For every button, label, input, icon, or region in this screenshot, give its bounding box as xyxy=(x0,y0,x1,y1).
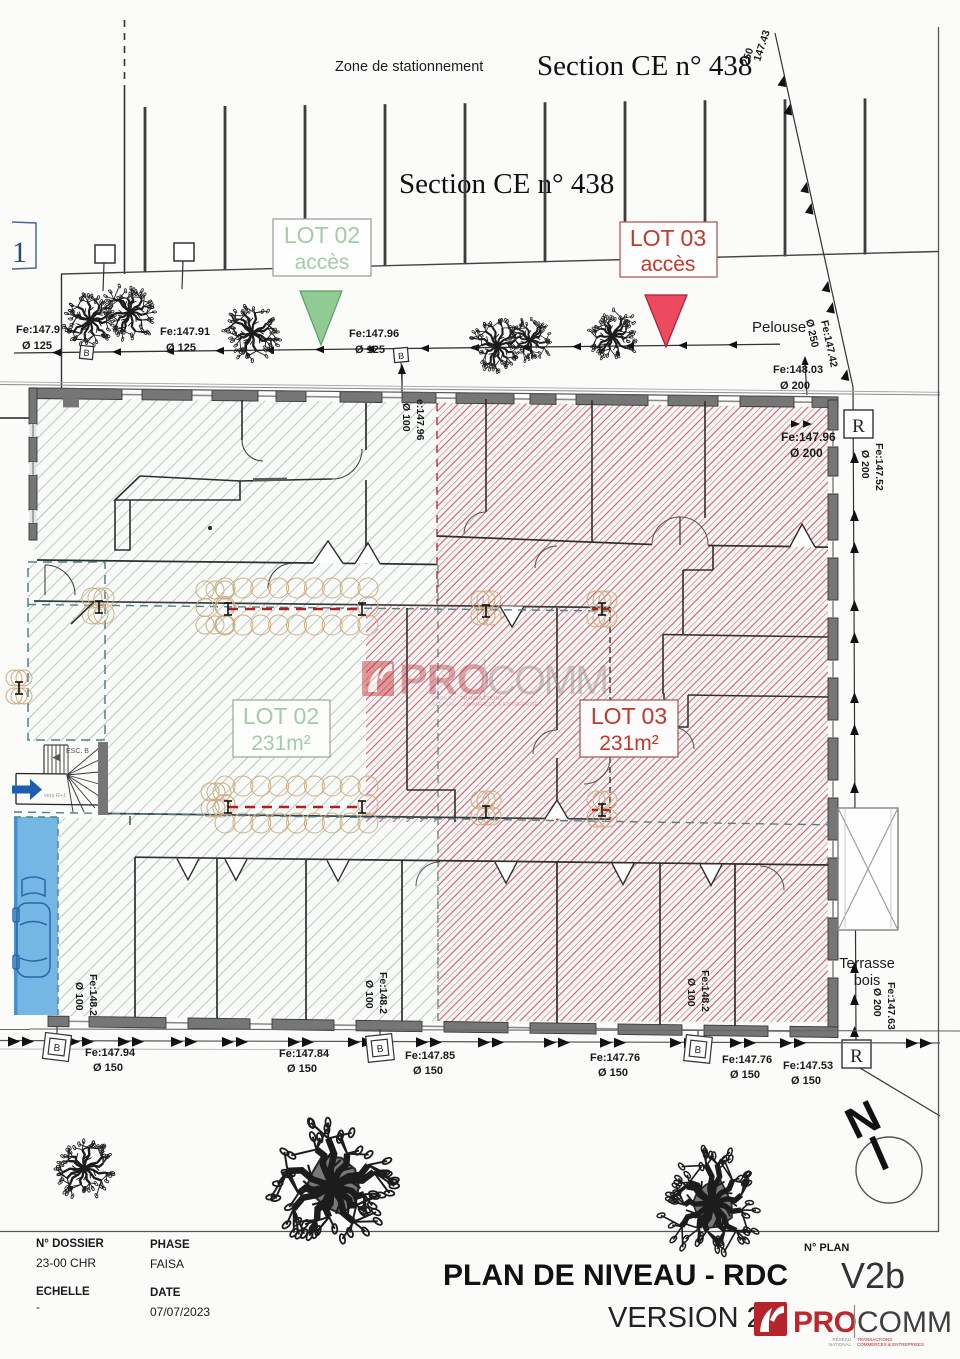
svg-text:Ø 150: Ø 150 xyxy=(791,1075,821,1087)
svg-text:Fe:147.63: Fe:147.63 xyxy=(885,982,897,1030)
svg-text:Ø 100: Ø 100 xyxy=(73,982,85,1011)
svg-text:Fe:147.84: Fe:147.84 xyxy=(279,1048,330,1060)
svg-text:Ø 125: Ø 125 xyxy=(355,344,385,356)
svg-text:vers R+1: vers R+1 xyxy=(44,793,66,799)
svg-text:231m²: 231m² xyxy=(251,732,311,755)
svg-text:COMMERCES & ENTREPRISES: COMMERCES & ENTREPRISES xyxy=(460,702,542,708)
svg-text:Ø 100: Ø 100 xyxy=(685,978,697,1007)
svg-text:Ø 150: Ø 150 xyxy=(730,1069,760,1081)
svg-text:Fe:148.2: Fe:148.2 xyxy=(377,972,389,1014)
svg-text:Fe:147.96: Fe:147.96 xyxy=(781,430,836,444)
svg-text:PRO: PRO xyxy=(793,1306,857,1339)
svg-text:Ø 150: Ø 150 xyxy=(598,1067,628,1079)
svg-text:LOT 03: LOT 03 xyxy=(630,225,706,251)
svg-text:Ø 150: Ø 150 xyxy=(413,1065,443,1077)
svg-text:LOT 02: LOT 02 xyxy=(284,222,360,248)
svg-text:Ø 125: Ø 125 xyxy=(166,342,196,354)
svg-text:B: B xyxy=(83,348,90,359)
svg-text:R: R xyxy=(852,416,865,437)
svg-text:07/07/2023: 07/07/2023 xyxy=(150,1305,210,1319)
svg-text:Ø 150: Ø 150 xyxy=(287,1063,317,1075)
svg-text:1: 1 xyxy=(12,236,27,269)
svg-text:Terrasse: Terrasse xyxy=(839,956,895,972)
svg-text:Section CE n° 438: Section CE n° 438 xyxy=(399,168,614,200)
svg-text:NATIONAL: NATIONAL xyxy=(428,702,455,708)
svg-text:COMM: COMM xyxy=(857,1306,952,1339)
svg-text:ESC. B: ESC. B xyxy=(66,748,89,755)
svg-text:Fe:147.85: Fe:147.85 xyxy=(405,1050,455,1062)
svg-text:LOT 03: LOT 03 xyxy=(591,703,667,729)
svg-text:COMM: COMM xyxy=(487,657,607,703)
svg-text:Zone de stationnement: Zone de stationnement xyxy=(335,59,483,75)
svg-text:23-00 CHR: 23-00 CHR xyxy=(36,1256,96,1270)
svg-text:COMMERCES & ENTREPRISES: COMMERCES & ENTREPRISES xyxy=(857,1342,924,1347)
svg-text:NATIONAL: NATIONAL xyxy=(829,1342,852,1347)
svg-text:e:147.96: e:147.96 xyxy=(414,399,426,441)
svg-text:accès: accès xyxy=(641,253,696,276)
svg-text:Fe:148.2: Fe:148.2 xyxy=(699,970,711,1012)
svg-text:accès: accès xyxy=(295,251,350,274)
svg-text:FAISA: FAISA xyxy=(150,1257,184,1271)
svg-text:Fe:148.2: Fe:148.2 xyxy=(87,974,99,1016)
svg-text:Fe:147.76: Fe:147.76 xyxy=(722,1054,772,1066)
svg-text:ECHELLE: ECHELLE xyxy=(36,1286,90,1298)
svg-text:Ø 200: Ø 200 xyxy=(859,450,871,479)
svg-text:Ø 200: Ø 200 xyxy=(871,988,883,1017)
svg-text:bois: bois xyxy=(854,973,881,989)
svg-text:Fe:147.94: Fe:147.94 xyxy=(85,1047,136,1059)
svg-text:-: - xyxy=(36,1300,40,1314)
svg-text:Fe:147.91: Fe:147.91 xyxy=(160,326,210,338)
svg-text:Pelouse: Pelouse xyxy=(752,319,806,336)
svg-text:N° DOSSIER: N° DOSSIER xyxy=(36,1238,105,1250)
svg-text:Fe:147.52: Fe:147.52 xyxy=(873,443,885,491)
svg-text:B: B xyxy=(398,351,405,361)
svg-text:VERSION 2: VERSION 2 xyxy=(608,1302,763,1334)
svg-text:Fe:147.9: Fe:147.9 xyxy=(16,324,60,336)
svg-text:Fe:147.53: Fe:147.53 xyxy=(783,1060,833,1072)
svg-text:PLAN DE NIVEAU - RDC: PLAN DE NIVEAU - RDC xyxy=(443,1259,788,1292)
svg-text:231m²: 231m² xyxy=(599,732,659,755)
svg-text:Ø 100: Ø 100 xyxy=(363,980,375,1009)
svg-text:Ø 200: Ø 200 xyxy=(790,446,823,460)
svg-text:R: R xyxy=(850,1046,863,1067)
svg-text:Ø 100: Ø 100 xyxy=(400,403,412,432)
svg-text:Fe:147.96: Fe:147.96 xyxy=(349,328,399,340)
svg-text:DATE: DATE xyxy=(150,1287,181,1299)
svg-text:Fe:147.76: Fe:147.76 xyxy=(590,1052,640,1064)
svg-text:RÉSEAU: RÉSEAU xyxy=(432,695,455,702)
svg-text:Ø 150: Ø 150 xyxy=(93,1062,123,1074)
svg-text:Ø 125: Ø 125 xyxy=(22,340,52,352)
svg-text:N° PLAN: N° PLAN xyxy=(804,1242,849,1254)
svg-text:PHASE: PHASE xyxy=(150,1239,190,1251)
svg-text:LOT 02: LOT 02 xyxy=(243,703,319,729)
svg-text:V2b: V2b xyxy=(841,1255,905,1296)
svg-text:Section CE n° 438: Section CE n° 438 xyxy=(537,50,752,82)
svg-text:Fe:148.03: Fe:148.03 xyxy=(773,364,823,376)
